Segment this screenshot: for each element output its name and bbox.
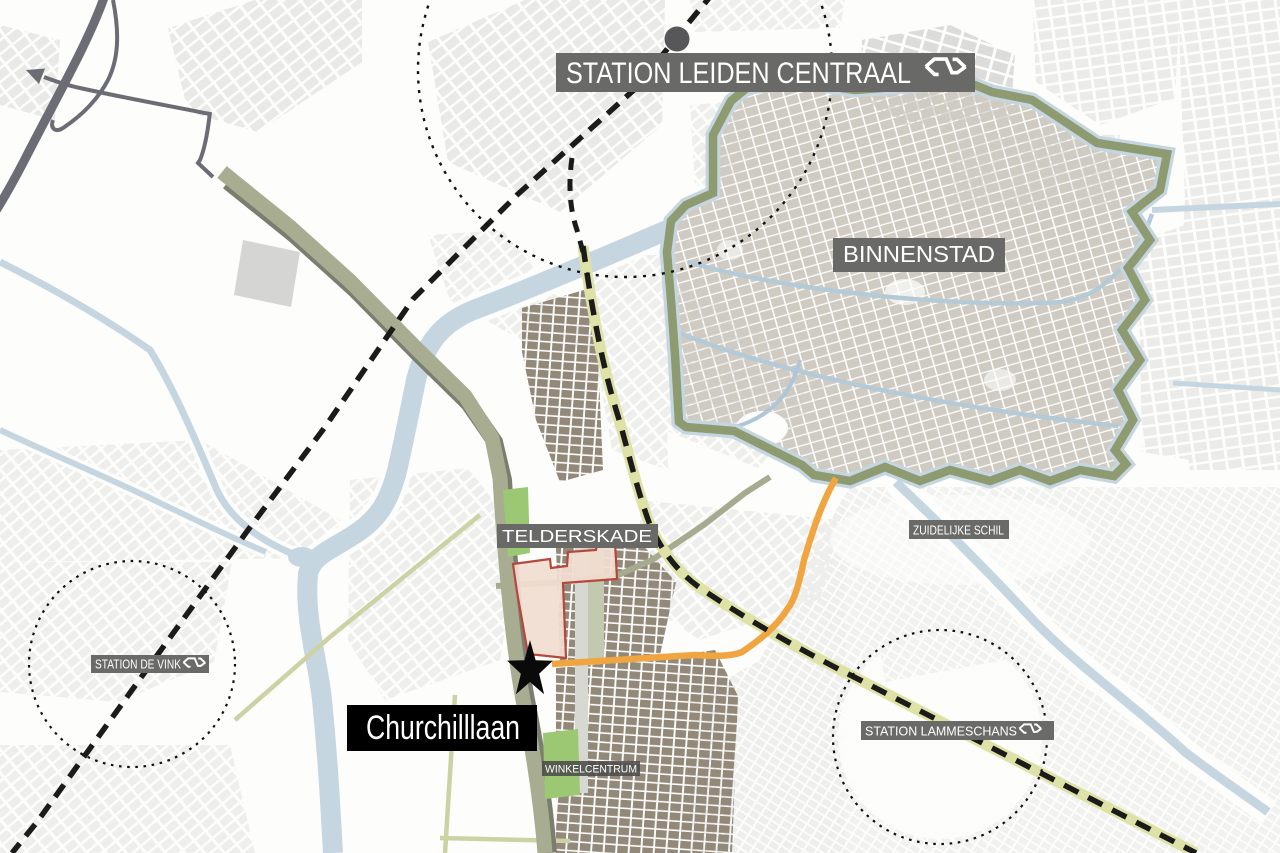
svg-text:STATION LAMMESCHANS: STATION LAMMESCHANS xyxy=(865,724,1017,739)
svg-text:BINNENSTAD: BINNENSTAD xyxy=(843,241,995,267)
svg-text:STATION LEIDEN CENTRAAL: STATION LEIDEN CENTRAAL xyxy=(566,57,911,90)
svg-text:ZUIDELIJKE SCHIL: ZUIDELIJKE SCHIL xyxy=(913,524,1004,538)
svg-text:Churchilllaan: Churchilllaan xyxy=(366,709,520,747)
svg-text:WINKELCENTRUM: WINKELCENTRUM xyxy=(545,764,637,776)
svg-text:STATION DE VINK: STATION DE VINK xyxy=(95,658,182,672)
svg-text:TELDERSKADE: TELDERSKADE xyxy=(502,526,652,546)
